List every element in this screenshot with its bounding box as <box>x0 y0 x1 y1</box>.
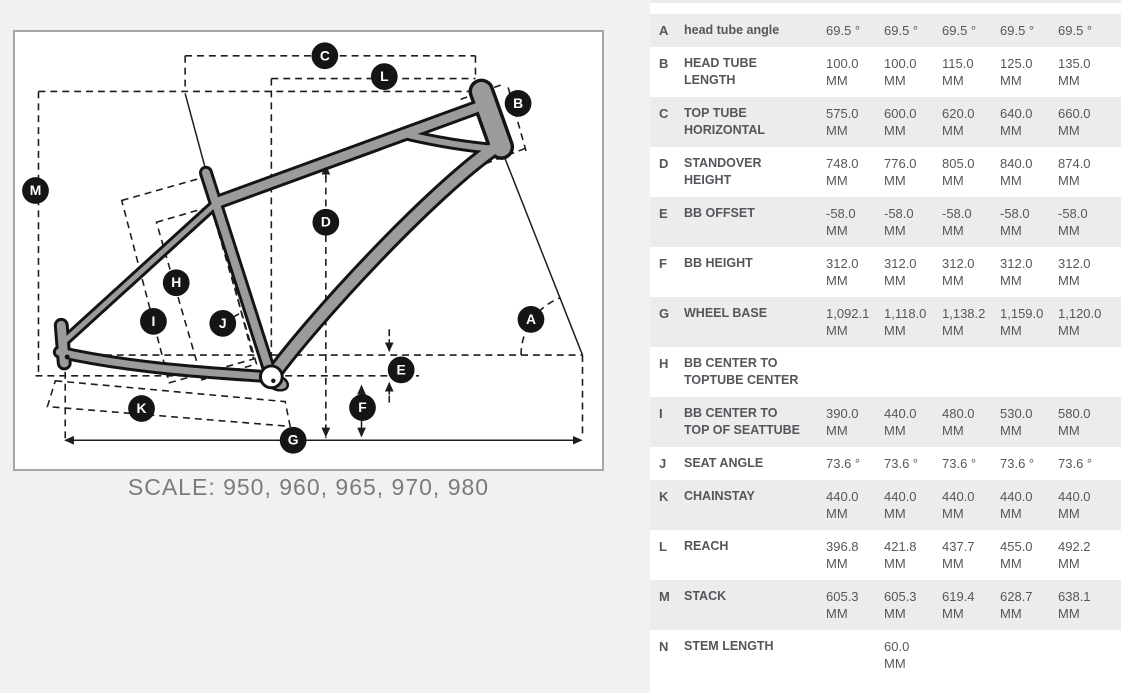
value-unit: MM <box>1000 222 1058 239</box>
value-unit: MM <box>884 72 942 89</box>
table-row: BHEAD TUBE LENGTH100.0MM100.0MM115.0MM12… <box>650 47 1121 97</box>
row-letter: K <box>650 488 684 505</box>
table-row: EBB OFFSET-58.0MM-58.0MM-58.0MM-58.0MM-5… <box>650 197 1121 247</box>
svg-text:K: K <box>137 400 147 416</box>
value-unit: MM <box>884 272 942 289</box>
row-letter: I <box>650 405 684 422</box>
row-label: BB HEIGHT <box>684 255 826 272</box>
row-value: 660.0MM <box>1058 105 1116 139</box>
value-number: 69.5 ° <box>884 22 942 39</box>
value-unit: MM <box>942 172 1000 189</box>
row-letter: D <box>650 155 684 172</box>
value-number: 776.0 <box>884 155 942 172</box>
value-unit: MM <box>884 655 942 672</box>
value-unit: MM <box>826 122 884 139</box>
row-value: 69.5 ° <box>884 22 942 39</box>
value-number: 605.3 <box>826 588 884 605</box>
value-number: 312.0 <box>884 255 942 272</box>
row-label: BB CENTER TO TOP OF SEATTUBE <box>684 405 826 439</box>
value-unit: MM <box>826 605 884 622</box>
value-unit: MM <box>942 272 1000 289</box>
value-unit: MM <box>1058 122 1116 139</box>
row-letter: N <box>650 638 684 655</box>
value-number: 530.0 <box>1000 405 1058 422</box>
value-unit: MM <box>884 322 942 339</box>
value-unit: MM <box>1000 605 1058 622</box>
value-number: 492.2 <box>1058 538 1116 555</box>
value-number: 440.0 <box>1058 488 1116 505</box>
value-unit: MM <box>826 222 884 239</box>
value-unit: MM <box>826 272 884 289</box>
value-unit: MM <box>884 222 942 239</box>
value-number: 69.5 ° <box>1000 22 1058 39</box>
value-unit: MM <box>826 555 884 572</box>
row-value: 440.0MM <box>826 488 884 522</box>
value-number: 619.4 <box>942 588 1000 605</box>
row-value: 390.0MM <box>826 405 884 439</box>
badge-e: E <box>388 357 415 384</box>
value-number: 73.6 ° <box>826 455 884 472</box>
row-value: 776.0MM <box>884 155 942 189</box>
value-unit: MM <box>942 555 1000 572</box>
value-unit: MM <box>1000 422 1058 439</box>
value-number: 1,159.0 <box>1000 305 1058 322</box>
value-number: 73.6 ° <box>1000 455 1058 472</box>
row-label: BB OFFSET <box>684 205 826 222</box>
row-label: BB CENTER TO TOPTUBE CENTER <box>684 355 826 389</box>
value-number: 805.0 <box>942 155 1000 172</box>
row-value: 628.7MM <box>1000 588 1058 622</box>
row-value: 440.0MM <box>942 488 1000 522</box>
row-letter: F <box>650 255 684 272</box>
row-value: 100.0MM <box>826 55 884 89</box>
svg-text:A: A <box>526 311 536 327</box>
row-letter: E <box>650 205 684 222</box>
badge-i: I <box>140 308 167 335</box>
table-row: HBB CENTER TO TOPTUBE CENTER <box>650 347 1121 397</box>
row-value: 73.6 ° <box>884 455 942 472</box>
value-unit: MM <box>1058 505 1116 522</box>
value-unit: MM <box>1000 505 1058 522</box>
value-number: 437.7 <box>942 538 1000 555</box>
row-value: 805.0MM <box>942 155 1000 189</box>
row-value: 440.0MM <box>1058 488 1116 522</box>
row-value: 312.0MM <box>884 255 942 289</box>
scale-caption: SCALE: 950, 960, 965, 970, 980 <box>13 474 604 501</box>
value-unit: MM <box>1058 172 1116 189</box>
value-unit: MM <box>1000 555 1058 572</box>
row-value: 73.6 ° <box>1000 455 1058 472</box>
value-unit: MM <box>1058 422 1116 439</box>
row-value: 312.0MM <box>826 255 884 289</box>
row-value: 440.0MM <box>884 488 942 522</box>
value-number: 312.0 <box>1058 255 1116 272</box>
value-number: 455.0 <box>1000 538 1058 555</box>
value-unit: MM <box>1058 222 1116 239</box>
geometry-table: Ahead tube angle69.5 °69.5 °69.5 °69.5 °… <box>650 0 1121 693</box>
row-value: 1,120.0MM <box>1058 305 1116 339</box>
bike-geometry-diagram: M C L B D H I J A E F K G <box>13 30 604 471</box>
row-label: STANDOVER HEIGHT <box>684 155 826 189</box>
row-value: 125.0MM <box>1000 55 1058 89</box>
row-value: -58.0MM <box>884 205 942 239</box>
row-value: 1,118.0MM <box>884 305 942 339</box>
value-number: -58.0 <box>826 205 884 222</box>
value-unit: MM <box>1058 605 1116 622</box>
row-label: REACH <box>684 538 826 555</box>
value-number: 1,138.2 <box>942 305 1000 322</box>
value-number: 628.7 <box>1000 588 1058 605</box>
svg-text:G: G <box>288 432 299 448</box>
svg-text:E: E <box>397 361 406 377</box>
value-number: 620.0 <box>942 105 1000 122</box>
svg-text:J: J <box>219 315 227 331</box>
row-value: 440.0MM <box>1000 488 1058 522</box>
table-row: JSEAT ANGLE73.6 °73.6 °73.6 °73.6 °73.6 … <box>650 447 1121 480</box>
row-value: 840.0MM <box>1000 155 1058 189</box>
row-value: 73.6 ° <box>1058 455 1116 472</box>
value-unit: MM <box>884 422 942 439</box>
row-label: HEAD TUBE LENGTH <box>684 55 826 89</box>
value-number: 100.0 <box>884 55 942 72</box>
row-value: 440.0MM <box>884 405 942 439</box>
table-row: KCHAINSTAY440.0MM440.0MM440.0MM440.0MM44… <box>650 480 1121 530</box>
row-value: 874.0MM <box>1058 155 1116 189</box>
value-unit: MM <box>942 505 1000 522</box>
row-letter: L <box>650 538 684 555</box>
value-number: 60.0 <box>884 638 942 655</box>
value-number: -58.0 <box>942 205 1000 222</box>
value-number: 125.0 <box>1000 55 1058 72</box>
value-number: 440.0 <box>826 488 884 505</box>
value-number: 440.0 <box>884 488 942 505</box>
frame-fill <box>59 91 501 376</box>
value-number: 575.0 <box>826 105 884 122</box>
row-letter: G <box>650 305 684 322</box>
row-value: 605.3MM <box>826 588 884 622</box>
badge-a: A <box>518 306 545 333</box>
table-row: CTOP TUBE HORIZONTAL575.0MM600.0MM620.0M… <box>650 97 1121 147</box>
value-unit: MM <box>884 172 942 189</box>
row-label: head tube angle <box>684 22 826 39</box>
badge-f: F <box>349 394 376 421</box>
rear-axle-dot <box>65 355 70 360</box>
bottom-bracket <box>260 366 282 388</box>
value-unit: MM <box>942 72 1000 89</box>
value-number: 115.0 <box>942 55 1000 72</box>
row-value: 455.0MM <box>1000 538 1058 572</box>
value-number: 312.0 <box>942 255 1000 272</box>
table-row: NSTEM LENGTH60.0MM <box>650 630 1121 680</box>
svg-text:M: M <box>30 182 42 198</box>
row-label: STEM LENGTH <box>684 638 826 655</box>
value-number: -58.0 <box>1058 205 1116 222</box>
table-row: GWHEEL BASE1,092.1MM1,118.0MM1,138.2MM1,… <box>650 297 1121 347</box>
svg-text:I: I <box>151 313 155 329</box>
row-label: STACK <box>684 588 826 605</box>
row-value: -58.0MM <box>942 205 1000 239</box>
row-value: 620.0MM <box>942 105 1000 139</box>
geometry-table-rows: Ahead tube angle69.5 °69.5 °69.5 °69.5 °… <box>650 14 1121 680</box>
value-unit: MM <box>1058 272 1116 289</box>
table-row: Ahead tube angle69.5 °69.5 °69.5 °69.5 °… <box>650 14 1121 47</box>
value-unit: MM <box>884 505 942 522</box>
row-value: -58.0MM <box>1000 205 1058 239</box>
value-number: 396.8 <box>826 538 884 555</box>
value-number: 660.0 <box>1058 105 1116 122</box>
frame-outline <box>59 91 501 376</box>
value-unit: MM <box>884 122 942 139</box>
row-label: CHAINSTAY <box>684 488 826 505</box>
value-number: 638.1 <box>1058 588 1116 605</box>
row-value: 421.8MM <box>884 538 942 572</box>
row-value: 135.0MM <box>1058 55 1116 89</box>
value-number: 600.0 <box>884 105 942 122</box>
row-value: 575.0MM <box>826 105 884 139</box>
table-row: IBB CENTER TO TOP OF SEATTUBE390.0MM440.… <box>650 397 1121 447</box>
row-value: 437.7MM <box>942 538 1000 572</box>
value-number: 640.0 <box>1000 105 1058 122</box>
value-unit: MM <box>884 555 942 572</box>
svg-text:F: F <box>358 399 366 415</box>
value-number: 69.5 ° <box>942 22 1000 39</box>
badge-b: B <box>505 90 532 117</box>
value-number: 580.0 <box>1058 405 1116 422</box>
row-value: 1,138.2MM <box>942 305 1000 339</box>
chainstay-box-k <box>47 381 290 427</box>
value-number: 840.0 <box>1000 155 1058 172</box>
value-unit: MM <box>942 322 1000 339</box>
row-value: 396.8MM <box>826 538 884 572</box>
svg-text:L: L <box>380 68 389 84</box>
row-letter: M <box>650 588 684 605</box>
table-row: DSTANDOVER HEIGHT748.0MM776.0MM805.0MM84… <box>650 147 1121 197</box>
value-unit: MM <box>826 172 884 189</box>
row-letter: A <box>650 22 684 39</box>
value-unit: MM <box>1058 555 1116 572</box>
value-number: 605.3 <box>884 588 942 605</box>
value-number: 390.0 <box>826 405 884 422</box>
value-unit: MM <box>1000 322 1058 339</box>
bike-frame <box>59 91 501 393</box>
row-value: 605.3MM <box>884 588 942 622</box>
value-number: 69.5 ° <box>1058 22 1116 39</box>
value-unit: MM <box>1058 322 1116 339</box>
svg-text:B: B <box>513 95 523 111</box>
value-number: 874.0 <box>1058 155 1116 172</box>
value-number: 748.0 <box>826 155 884 172</box>
row-value: 530.0MM <box>1000 405 1058 439</box>
value-number: 440.0 <box>884 405 942 422</box>
value-unit: MM <box>1000 272 1058 289</box>
row-value: 69.5 ° <box>1058 22 1116 39</box>
value-unit: MM <box>826 505 884 522</box>
row-value: 580.0MM <box>1058 405 1116 439</box>
row-value: 748.0MM <box>826 155 884 189</box>
badge-k: K <box>128 395 155 422</box>
value-number: -58.0 <box>884 205 942 222</box>
value-number: 135.0 <box>1058 55 1116 72</box>
value-number: 480.0 <box>942 405 1000 422</box>
row-value: 638.1MM <box>1058 588 1116 622</box>
row-value: 69.5 ° <box>1000 22 1058 39</box>
value-unit: MM <box>942 422 1000 439</box>
table-row: MSTACK605.3MM605.3MM619.4MM628.7MM638.1M… <box>650 580 1121 630</box>
row-label: SEAT ANGLE <box>684 455 826 472</box>
row-letter: B <box>650 55 684 72</box>
row-value: 69.5 ° <box>826 22 884 39</box>
row-value: 100.0MM <box>884 55 942 89</box>
row-value: -58.0MM <box>1058 205 1116 239</box>
badge-m: M <box>22 177 49 204</box>
row-value: 1,159.0MM <box>1000 305 1058 339</box>
value-unit: MM <box>884 605 942 622</box>
table-top-strip <box>650 0 1121 3</box>
value-number: 73.6 ° <box>942 455 1000 472</box>
value-unit: MM <box>826 422 884 439</box>
row-value: -58.0MM <box>826 205 884 239</box>
row-value: 492.2MM <box>1058 538 1116 572</box>
value-unit: MM <box>942 222 1000 239</box>
value-unit: MM <box>1058 72 1116 89</box>
diagram-panel: M C L B D H I J A E F K G SCALE: 950, 96… <box>0 0 650 693</box>
table-row: FBB HEIGHT312.0MM312.0MM312.0MM312.0MM31… <box>650 247 1121 297</box>
value-unit: MM <box>826 72 884 89</box>
row-value: 600.0MM <box>884 105 942 139</box>
row-value: 640.0MM <box>1000 105 1058 139</box>
row-value: 312.0MM <box>1058 255 1116 289</box>
value-number: 312.0 <box>1000 255 1058 272</box>
row-letter: C <box>650 105 684 122</box>
value-number: 73.6 ° <box>1058 455 1116 472</box>
row-value: 619.4MM <box>942 588 1000 622</box>
row-value: 69.5 ° <box>942 22 1000 39</box>
row-letter: J <box>650 455 684 472</box>
badge-h: H <box>163 269 190 296</box>
value-number: 421.8 <box>884 538 942 555</box>
badge-j: J <box>209 310 236 337</box>
seat-axis-line <box>185 93 206 170</box>
value-number: 1,120.0 <box>1058 305 1116 322</box>
value-number: 69.5 ° <box>826 22 884 39</box>
svg-text:D: D <box>321 214 331 230</box>
row-letter: H <box>650 355 684 372</box>
row-label: TOP TUBE HORIZONTAL <box>684 105 826 139</box>
badge-d: D <box>312 209 339 236</box>
bb-spindle-dot <box>271 379 275 383</box>
value-unit: MM <box>1000 72 1058 89</box>
value-number: 100.0 <box>826 55 884 72</box>
value-number: -58.0 <box>1000 205 1058 222</box>
row-value: 73.6 ° <box>826 455 884 472</box>
row-value: 73.6 ° <box>942 455 1000 472</box>
value-unit: MM <box>1000 122 1058 139</box>
value-number: 312.0 <box>826 255 884 272</box>
badge-c: C <box>311 42 338 69</box>
value-number: 73.6 ° <box>884 455 942 472</box>
value-number: 440.0 <box>1000 488 1058 505</box>
value-unit: MM <box>942 605 1000 622</box>
row-value: 312.0MM <box>1000 255 1058 289</box>
row-value: 60.0MM <box>884 638 942 672</box>
value-unit: MM <box>1000 172 1058 189</box>
row-value: 480.0MM <box>942 405 1000 439</box>
svg-text:C: C <box>320 47 330 63</box>
table-row: LREACH396.8MM421.8MM437.7MM455.0MM492.2M… <box>650 530 1121 580</box>
row-value: 312.0MM <box>942 255 1000 289</box>
row-value: 1,092.1MM <box>826 305 884 339</box>
value-number: 1,118.0 <box>884 305 942 322</box>
geometry-diagram-svg: M C L B D H I J A E F K G <box>15 32 602 469</box>
badge-l: L <box>371 63 398 90</box>
row-label: WHEEL BASE <box>684 305 826 322</box>
value-unit: MM <box>942 122 1000 139</box>
value-unit: MM <box>826 322 884 339</box>
row-value: 115.0MM <box>942 55 1000 89</box>
value-number: 1,092.1 <box>826 305 884 322</box>
svg-text:H: H <box>171 274 181 290</box>
badge-g: G <box>280 427 307 454</box>
value-number: 440.0 <box>942 488 1000 505</box>
